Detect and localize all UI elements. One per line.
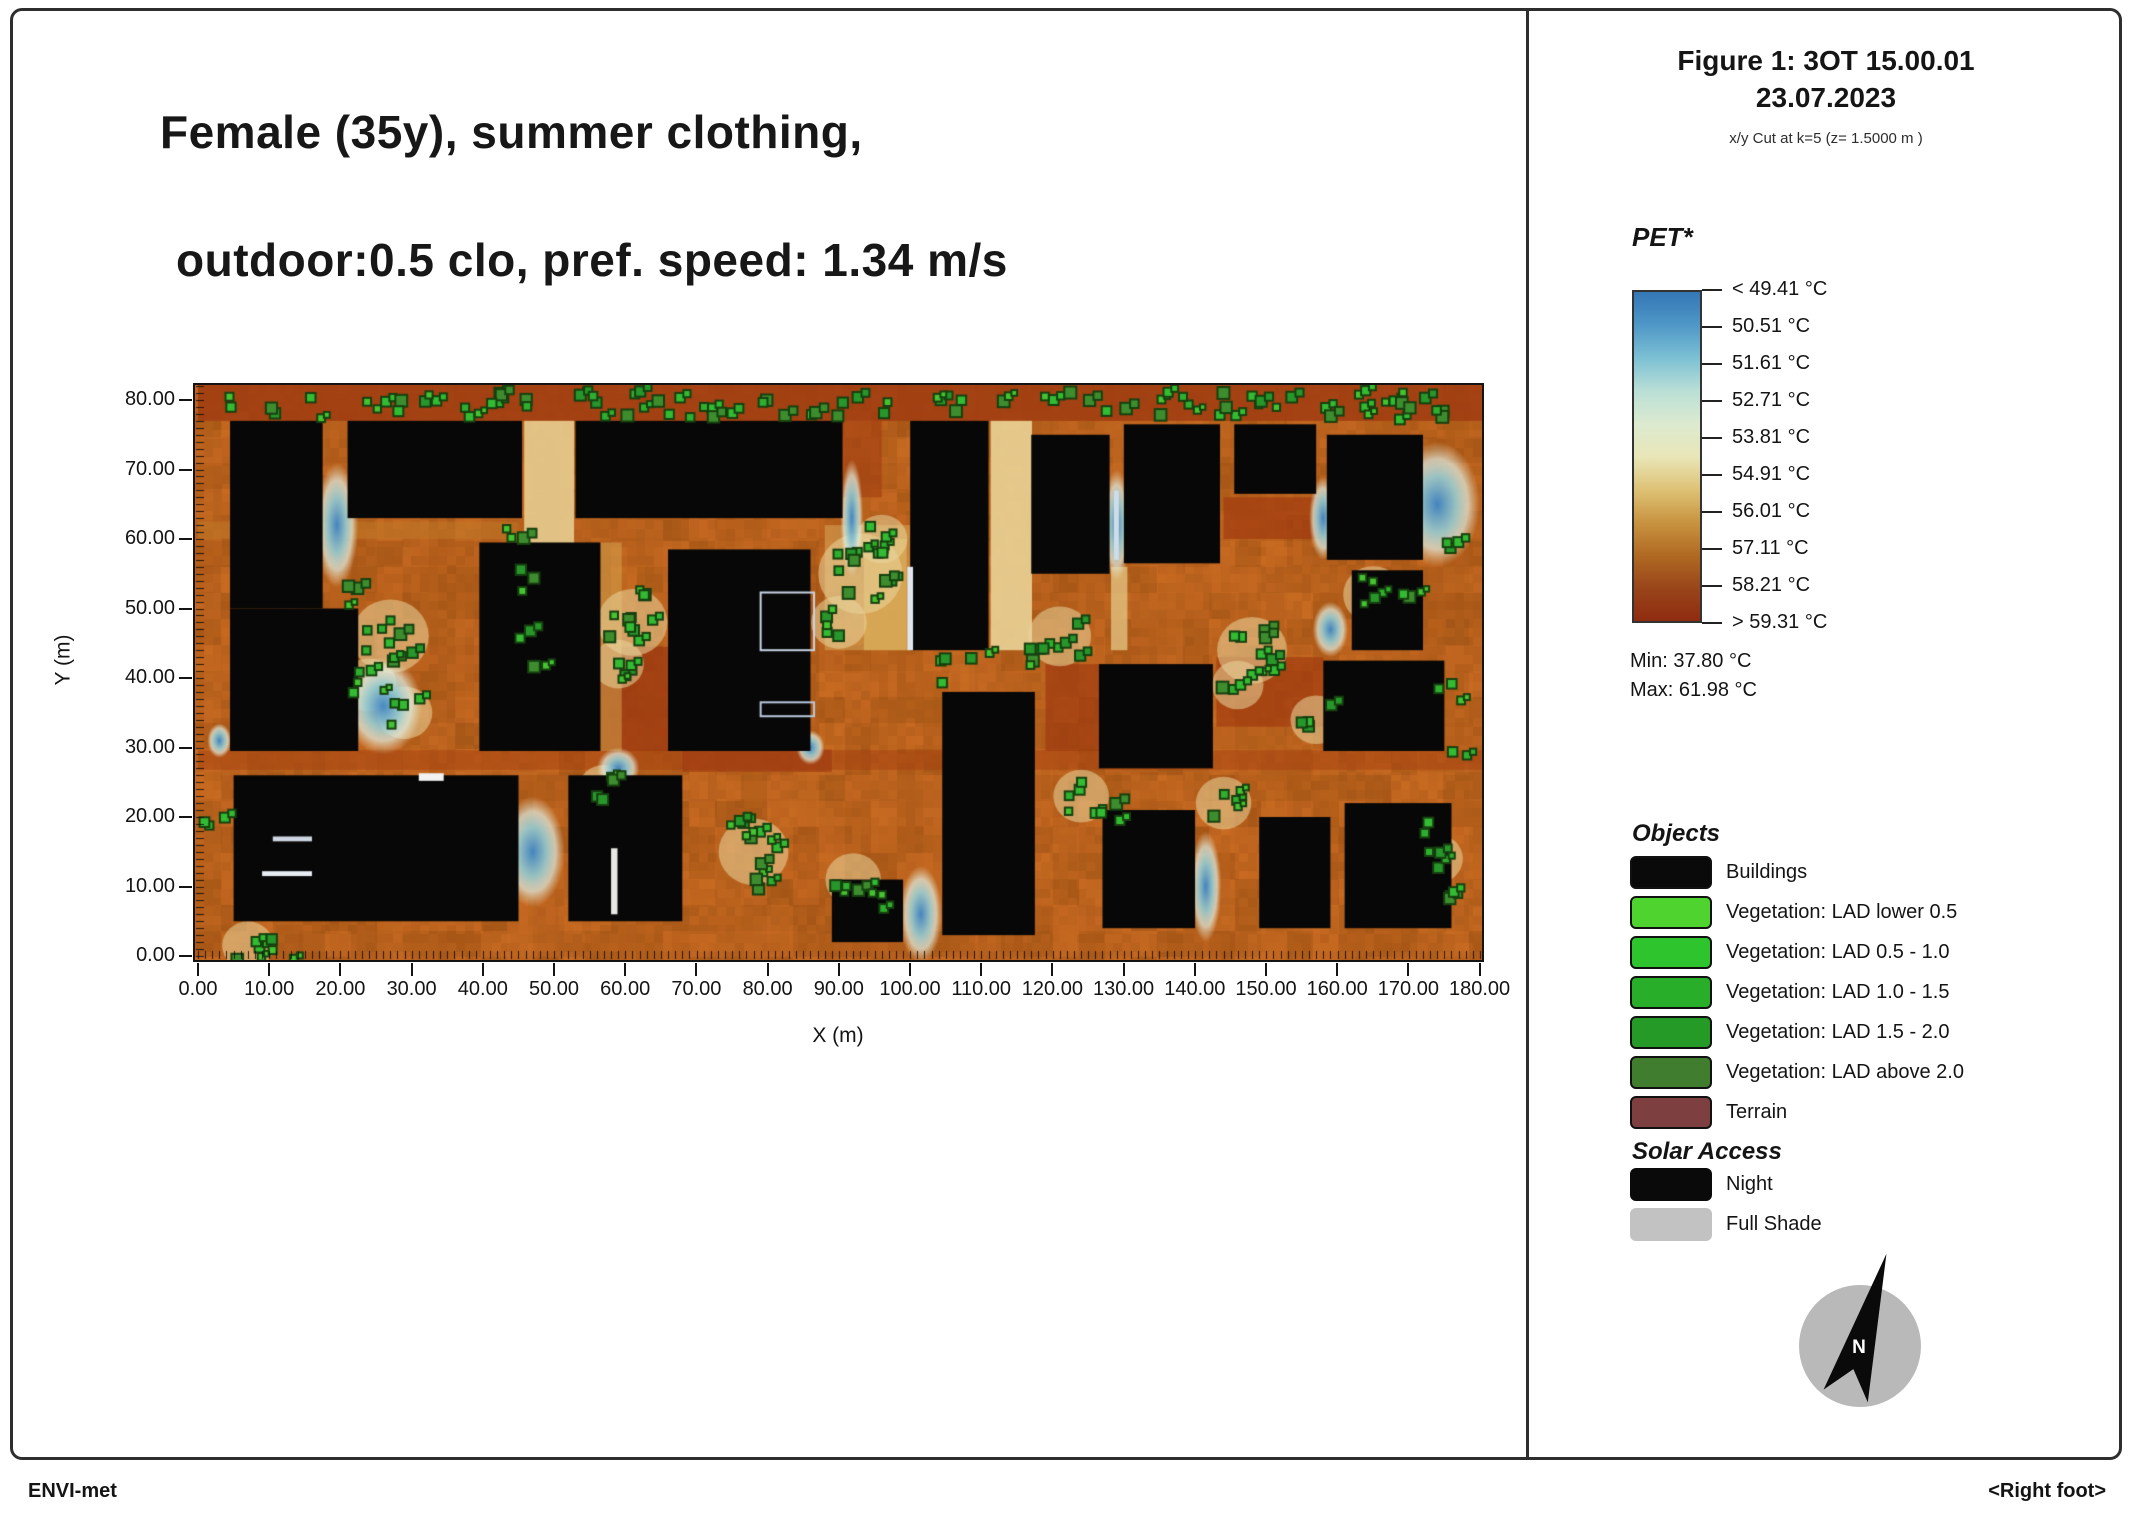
colorbar-tick-label: 54.91 °C: [1732, 463, 1810, 486]
colorbar-tick-mark: [1702, 622, 1722, 624]
x-tick-mark: [1479, 963, 1481, 976]
x-tick-mark: [1265, 963, 1267, 976]
x-tick-label: 10.00: [244, 978, 294, 1001]
map-title-line1: Female (35y), summer clothing,: [160, 105, 863, 159]
figure-cut-info: x/y Cut at k=5 (z= 1.5000 m ): [1600, 130, 2052, 147]
x-tick-mark: [1336, 963, 1338, 976]
legend-item-label: Night: [1726, 1173, 1773, 1196]
x-tick-label: 50.00: [529, 978, 579, 1001]
x-tick-mark: [1123, 963, 1125, 976]
legend-item-label: Vegetation: LAD lower 0.5: [1726, 901, 1957, 924]
colorbar-tick-mark: [1702, 585, 1722, 587]
colorbar-tick-label: 53.81 °C: [1732, 426, 1810, 449]
y-tick-mark: [179, 955, 192, 957]
colorbar-tick-label: 57.11 °C: [1732, 537, 1809, 560]
colorbar-tick-mark: [1702, 548, 1722, 550]
legend-item-label: Terrain: [1726, 1101, 1787, 1124]
colorbar-tick-label: 58.21 °C: [1732, 574, 1810, 597]
map-title-line2: outdoor:0.5 clo, pref. speed: 1.34 m/s: [176, 233, 1008, 287]
x-tick-label: 100.00: [879, 978, 940, 1001]
plot-frame: [193, 383, 1484, 962]
x-tick-mark: [1407, 963, 1409, 976]
x-tick-label: 130.00: [1093, 978, 1154, 1001]
colorbar-tick-label: 50.51 °C: [1732, 315, 1810, 338]
pet-heatmap-canvas: [195, 385, 1482, 960]
x-tick-label: 110.00: [951, 978, 1011, 1001]
legend-item-label: Buildings: [1726, 861, 1807, 884]
x-tick-label: 160.00: [1307, 978, 1368, 1001]
colorbar-tick-label: 52.71 °C: [1732, 389, 1810, 412]
x-tick-mark: [482, 963, 484, 976]
x-tick-label: 20.00: [315, 978, 365, 1001]
colorbar-tick-mark: [1702, 400, 1722, 402]
x-tick-label: 40.00: [458, 978, 508, 1001]
vegetation-swatch: [1630, 1016, 1712, 1049]
colorbar-max: Max: 61.98 °C: [1630, 679, 1757, 702]
colorbar-tick-mark: [1702, 437, 1722, 439]
objects-legend-title: Objects: [1632, 820, 1720, 848]
x-tick-mark: [197, 963, 199, 976]
full-shade-swatch: [1630, 1208, 1712, 1241]
x-tick-mark: [268, 963, 270, 976]
colorbar-tick-label: 51.61 °C: [1732, 352, 1810, 375]
colorbar-tick-label: < 49.41 °C: [1732, 278, 1827, 301]
y-tick-mark: [179, 399, 192, 401]
colorbar-tick-mark: [1702, 363, 1722, 365]
x-tick-mark: [553, 963, 555, 976]
y-tick-label: 40.00: [111, 666, 175, 689]
x-tick-label: 30.00: [387, 978, 437, 1001]
y-tick-label: 30.00: [111, 736, 175, 759]
colorbar-tick-label: 56.01 °C: [1732, 500, 1810, 523]
colorbar-tick-mark: [1702, 474, 1722, 476]
figure-date: 23.07.2023: [1600, 79, 2052, 116]
y-tick-mark: [179, 608, 192, 610]
x-tick-mark: [411, 963, 413, 976]
x-tick-mark: [767, 963, 769, 976]
x-tick-mark: [980, 963, 982, 976]
x-tick-mark: [1051, 963, 1053, 976]
y-tick-mark: [179, 538, 192, 540]
colorbar-gradient: [1632, 290, 1702, 623]
legend-item-label: Full Shade: [1726, 1213, 1822, 1236]
x-tick-mark: [339, 963, 341, 976]
y-tick-label: 20.00: [111, 805, 175, 828]
vegetation-swatch: [1630, 936, 1712, 969]
legend-item-label: Vegetation: LAD 1.5 - 2.0: [1726, 1021, 1950, 1044]
y-tick-label: 80.00: [111, 388, 175, 411]
x-tick-mark: [838, 963, 840, 976]
panel-divider: [1526, 8, 1529, 1457]
x-tick-label: 150.00: [1235, 978, 1296, 1001]
x-tick-label: 0.00: [179, 978, 218, 1001]
buildings-swatch: [1630, 856, 1712, 889]
y-tick-mark: [179, 886, 192, 888]
figure-header: Figure 1: 3OT 15.00.01 23.07.2023 x/y Cu…: [1600, 42, 2052, 147]
x-tick-label: 90.00: [814, 978, 864, 1001]
x-tick-mark: [695, 963, 697, 976]
x-tick-mark: [1194, 963, 1196, 976]
x-tick-label: 120.00: [1022, 978, 1083, 1001]
colorbar-min: Min: 37.80 °C: [1630, 650, 1751, 673]
y-tick-mark: [179, 469, 192, 471]
vegetation-swatch: [1630, 976, 1712, 1009]
terrain-swatch: [1630, 1096, 1712, 1129]
compass-n-label: N: [1852, 1337, 1866, 1358]
y-tick-mark: [179, 677, 192, 679]
figure-title: Figure 1: 3OT 15.00.01: [1600, 42, 2052, 79]
y-tick-label: 0.00: [111, 944, 175, 967]
x-tick-label: 140.00: [1164, 978, 1225, 1001]
solar-legend-title: Solar Access: [1632, 1138, 1782, 1166]
footer-left: ENVI-met: [28, 1480, 117, 1503]
x-tick-label: 60.00: [600, 978, 650, 1001]
legend-item-label: Vegetation: LAD 1.0 - 1.5: [1726, 981, 1950, 1004]
vegetation-swatch: [1630, 896, 1712, 929]
colorbar-title: PET*: [1632, 222, 1693, 253]
x-tick-label: 70.00: [671, 978, 721, 1001]
colorbar-tick-mark: [1702, 326, 1722, 328]
y-tick-label: 60.00: [111, 527, 175, 550]
footer-right: <Right foot>: [1806, 1480, 2106, 1503]
x-tick-label: 170.00: [1378, 978, 1439, 1001]
vegetation-swatch: [1630, 1056, 1712, 1089]
y-tick-label: 70.00: [111, 458, 175, 481]
colorbar-tick-mark: [1702, 511, 1722, 513]
x-axis-label: X (m): [812, 1024, 863, 1048]
y-axis-label: Y (m): [51, 635, 75, 686]
legend-item-label: Vegetation: LAD 0.5 - 1.0: [1726, 941, 1950, 964]
north-arrow-compass-icon: N: [1762, 1246, 1962, 1446]
y-tick-label: 50.00: [111, 597, 175, 620]
legend-item-label: Vegetation: LAD above 2.0: [1726, 1061, 1964, 1084]
x-tick-label: 180.00: [1449, 978, 1510, 1001]
y-tick-label: 10.00: [111, 875, 175, 898]
x-tick-mark: [909, 963, 911, 976]
y-tick-mark: [179, 747, 192, 749]
x-tick-label: 80.00: [743, 978, 793, 1001]
colorbar-tick-label: > 59.31 °C: [1732, 611, 1827, 634]
colorbar-tick-mark: [1702, 289, 1722, 291]
y-tick-mark: [179, 816, 192, 818]
night-swatch: [1630, 1168, 1712, 1201]
x-tick-mark: [624, 963, 626, 976]
